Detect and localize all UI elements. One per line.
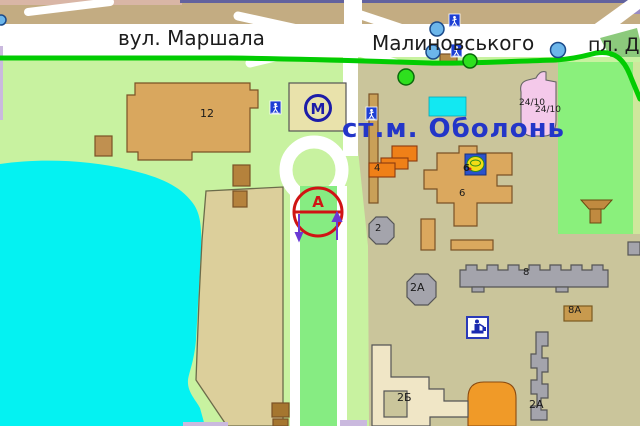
building-label-6: 6	[459, 189, 465, 199]
north-road-stub	[344, 0, 362, 26]
lot-shed-3	[272, 403, 289, 417]
building-label-8a: 8А	[568, 306, 581, 316]
building-label-6-top: 6	[463, 164, 470, 174]
svg-text:А: А	[312, 193, 324, 211]
building-label-2a-strip: 2А	[529, 399, 544, 410]
building-label-2: 2	[375, 224, 381, 234]
lot-shed-2	[233, 191, 247, 207]
building-8-tab2	[556, 287, 568, 292]
square-label: пл. Д	[588, 36, 640, 55]
main-road	[0, 24, 640, 57]
lot-shed-4	[273, 419, 288, 426]
stop-marker-blue[interactable]	[551, 43, 566, 58]
pedestrian-crossing-icon[interactable]	[270, 101, 281, 114]
paved-lot	[196, 187, 283, 426]
stop-marker-blue[interactable]	[0, 15, 6, 25]
building-label-2b: 2Б	[397, 392, 412, 403]
building-label-2a-octagon: 2А	[410, 282, 425, 293]
monument-icon[interactable]	[467, 317, 488, 338]
city-map: М А	[0, 0, 640, 426]
bottom-road-strip-left	[183, 422, 228, 426]
lot-shed-1	[233, 165, 250, 186]
svg-text:М: М	[311, 100, 326, 118]
stop-marker-green[interactable]	[463, 54, 477, 68]
street-label-malynovskoho: Малиновського	[372, 33, 534, 53]
building-gray-east	[628, 242, 640, 255]
building-4-step3	[369, 163, 395, 177]
building-label-8: 8	[523, 268, 529, 278]
street-label-marshala: вул. Маршала	[118, 28, 265, 48]
building-6-wing	[421, 219, 435, 250]
building-label-4: 4	[374, 164, 380, 174]
building-2	[369, 217, 394, 244]
stop-marker-green[interactable]	[398, 69, 414, 85]
lake	[0, 161, 205, 426]
building-orange-round	[468, 382, 516, 426]
building-12	[127, 83, 258, 160]
metro-station-label: ст.м. Оболонь	[342, 116, 565, 142]
building-label-12: 12	[200, 108, 214, 119]
pedestrian-crossing-icon[interactable]	[449, 14, 460, 27]
building-6-bar	[451, 240, 493, 250]
top-edge-line	[180, 0, 640, 3]
building-small-west	[95, 136, 112, 156]
building-label-24-10-b: 24/10	[535, 106, 561, 115]
metro-symbol[interactable]: М	[306, 96, 331, 121]
building-8-tab1	[472, 287, 484, 292]
bottom-road-strip-right	[340, 420, 367, 426]
